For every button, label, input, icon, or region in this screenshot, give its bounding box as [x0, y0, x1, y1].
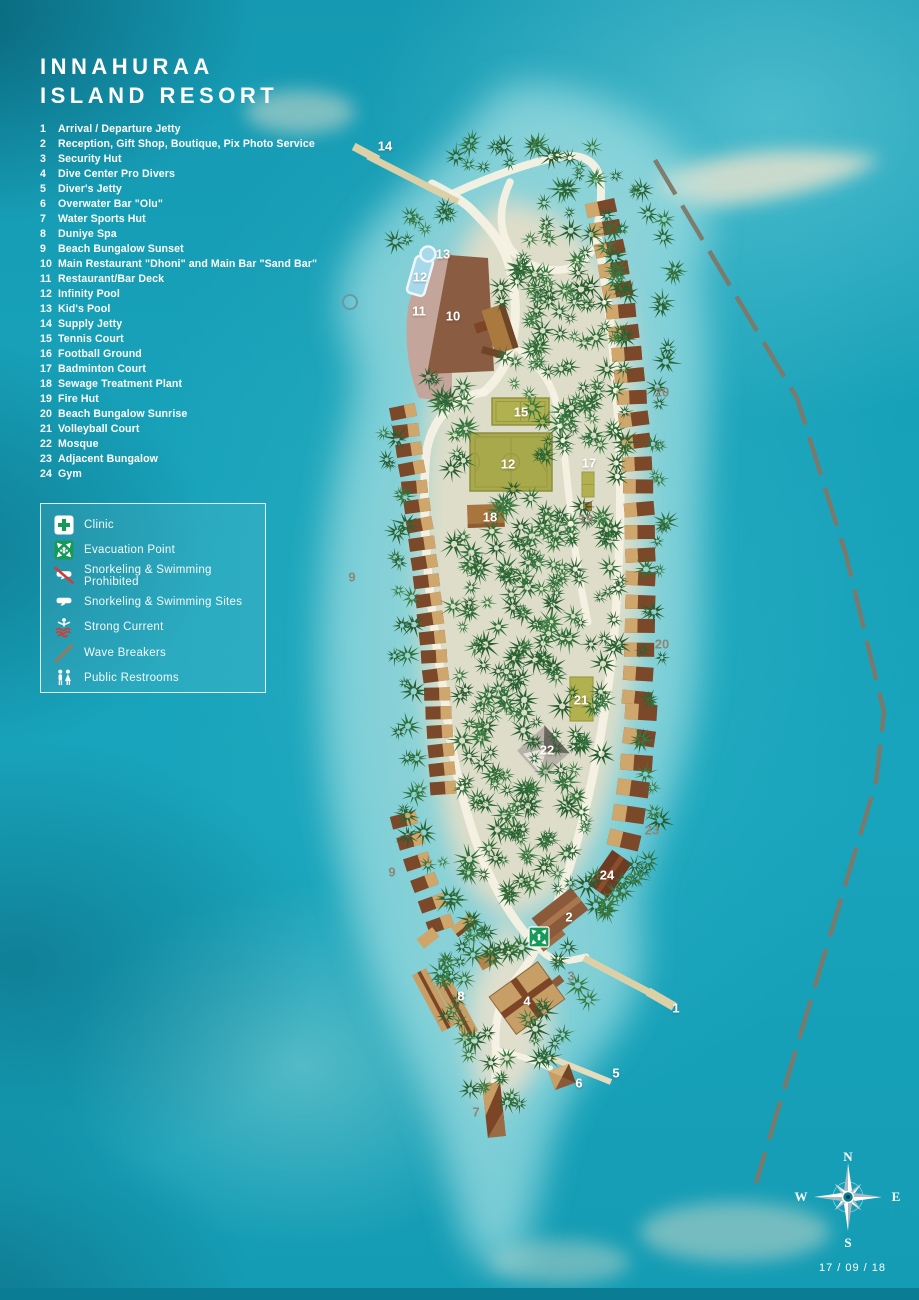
- map-number-label: 18: [483, 510, 497, 525]
- legend-item-label: Kid's Pool: [58, 303, 110, 315]
- strong-current-icon: [53, 616, 75, 638]
- bottom-bar: [0, 1288, 919, 1300]
- evacuation-point-icon: [53, 539, 75, 561]
- legend-item-label: Beach Bungalow Sunset: [58, 243, 184, 255]
- buoy-marker: [343, 295, 357, 309]
- legend-item-label: Supply Jetty: [58, 318, 122, 330]
- legend-item-label: Gym: [58, 468, 82, 480]
- map-number-label: 9: [388, 865, 395, 880]
- map-number-label: 8: [457, 989, 464, 1004]
- map-number-label: 22: [540, 743, 554, 758]
- legend-item-label: Restaurant/Bar Deck: [58, 273, 164, 285]
- map-number-label: 12: [501, 457, 515, 472]
- legend-item-label: Fire Hut: [58, 393, 99, 405]
- legend-item: 8 Duniye Spa: [40, 226, 340, 241]
- symbols-legend-label: Strong Current: [84, 621, 164, 633]
- legend-item: 15 Tennis Court: [40, 331, 340, 346]
- symbols-legend-row: Snorkeling & Swimming Sites: [53, 589, 265, 615]
- symbols-legend-row: Snorkeling & Swimming Prohibited: [53, 563, 265, 589]
- map-number-label: 20: [655, 637, 669, 652]
- legend-item-label: Dive Center Pro Divers: [58, 168, 175, 180]
- symbols-legend-row: Strong Current: [53, 614, 265, 640]
- map-number-label: 23: [645, 823, 659, 838]
- map-number-label: 14: [378, 139, 392, 154]
- legend-item-label: Water Sports Hut: [58, 213, 146, 225]
- map-number-label: 2: [565, 910, 572, 925]
- resort-title-line1: INNAHURAA: [40, 52, 278, 81]
- legend-item-number: 20: [40, 408, 58, 420]
- legend-item: 5 Diver's Jetty: [40, 181, 340, 196]
- sandbank-south: [640, 1202, 830, 1262]
- legend-item-number: 1: [40, 123, 58, 135]
- legend-item-label: Badminton Court: [58, 363, 146, 375]
- symbols-legend-box: Clinic Evacuation Point Snorkeling & Swi…: [40, 503, 266, 693]
- legend-item: 22 Mosque: [40, 436, 340, 451]
- legend-item: 21 Volleyball Court: [40, 421, 340, 436]
- numbered-legend-list: 1 Arrival / Departure Jetty 2 Reception,…: [40, 121, 340, 481]
- legend-item: 17 Badminton Court: [40, 361, 340, 376]
- legend-item-number: 17: [40, 363, 58, 375]
- legend-item-number: 8: [40, 228, 58, 240]
- legend-item: 6 Overwater Bar "Olu": [40, 196, 340, 211]
- legend-item: 18 Sewage Treatment Plant: [40, 376, 340, 391]
- legend-item-number: 10: [40, 258, 58, 270]
- evacuation-point-marker: [529, 927, 549, 947]
- legend-item-number: 24: [40, 468, 58, 480]
- legend-item-number: 14: [40, 318, 58, 330]
- legend-item: 2 Reception, Gift Shop, Boutique, Pix Ph…: [40, 136, 340, 151]
- map-date: 17 / 09 / 18: [819, 1262, 886, 1274]
- legend-item-number: 16: [40, 348, 58, 360]
- symbols-legend-row: Public Restrooms: [53, 666, 265, 692]
- map-number-label: 3: [567, 969, 574, 984]
- resort-title: INNAHURAA ISLAND RESORT: [40, 52, 278, 110]
- kids-pool: [421, 247, 436, 262]
- map-number-label: 5: [612, 1066, 619, 1081]
- symbols-legend-row: Wave Breakers: [53, 640, 265, 666]
- map-number-label: 17: [582, 456, 596, 471]
- legend-item-label: Diver's Jetty: [58, 183, 122, 195]
- legend-item-number: 2: [40, 138, 58, 150]
- legend-item-number: 13: [40, 303, 58, 315]
- legend-item-number: 22: [40, 438, 58, 450]
- legend-item-number: 11: [40, 273, 58, 285]
- legend-item: 10 Main Restaurant "Dhoni" and Main Bar …: [40, 256, 340, 271]
- legend-item: 20 Beach Bungalow Sunrise: [40, 406, 340, 421]
- legend-item-label: Sewage Treatment Plant: [58, 378, 182, 390]
- legend-item-label: Beach Bungalow Sunrise: [58, 408, 187, 420]
- legend-item-label: Tennis Court: [58, 333, 124, 345]
- map-number-label: 12: [413, 270, 427, 285]
- legend-item-number: 23: [40, 453, 58, 465]
- legend-item: 7 Water Sports Hut: [40, 211, 340, 226]
- legend-item-number: 18: [40, 378, 58, 390]
- legend-item-label: Adjacent Bungalow: [58, 453, 158, 465]
- legend-item-label: Reception, Gift Shop, Boutique, Pix Phot…: [58, 138, 315, 150]
- legend-item: 3 Security Hut: [40, 151, 340, 166]
- compass-south-label: S: [844, 1235, 851, 1250]
- resort-title-line2: ISLAND RESORT: [40, 81, 278, 110]
- legend-item-number: 7: [40, 213, 58, 225]
- legend-item-number: 12: [40, 288, 58, 300]
- legend-item-label: Duniye Spa: [58, 228, 117, 240]
- map-number-label: 20: [655, 385, 669, 400]
- compass-west-label: W: [795, 1189, 808, 1204]
- map-number-label: 24: [600, 868, 614, 883]
- legend-item-label: Security Hut: [58, 153, 122, 165]
- map-number-label: 6: [575, 1076, 582, 1091]
- symbols-legend-row: Clinic: [53, 512, 265, 538]
- legend-item-label: Arrival / Departure Jetty: [58, 123, 181, 135]
- legend-item-number: 21: [40, 423, 58, 435]
- compass-east-label: E: [892, 1189, 901, 1204]
- snorkeling-sites-icon: [53, 591, 75, 613]
- badminton-court: [582, 472, 594, 497]
- legend-item: 13 Kid's Pool: [40, 301, 340, 316]
- symbols-legend-label: Evacuation Point: [84, 544, 175, 556]
- clinic-icon: [53, 514, 75, 536]
- map-number-label: 9: [348, 570, 355, 585]
- legend-item-label: Overwater Bar "Olu": [58, 198, 163, 210]
- legend-item-label: Infinity Pool: [58, 288, 120, 300]
- legend-item: 11 Restaurant/Bar Deck: [40, 271, 340, 286]
- legend-item-number: 3: [40, 153, 58, 165]
- resort-map-poster: N S W E INNAHURAA ISLAND RESORT 1 Arriva…: [0, 0, 919, 1300]
- map-number-label: 19: [579, 512, 593, 527]
- map-number-label: 1: [672, 1001, 679, 1016]
- legend-item: 9 Beach Bungalow Sunset: [40, 241, 340, 256]
- legend-item-number: 15: [40, 333, 58, 345]
- legend-item-number: 4: [40, 168, 58, 180]
- symbols-legend-label: Clinic: [84, 519, 114, 531]
- legend-item: 12 Infinity Pool: [40, 286, 340, 301]
- symbols-legend-label: Snorkeling & Swimming Sites: [84, 596, 242, 608]
- wave-breakers-icon: [53, 642, 75, 664]
- map-number-label: 11: [412, 304, 426, 319]
- legend-item-number: 5: [40, 183, 58, 195]
- snorkeling-prohibited-icon: [53, 565, 75, 587]
- compass-north-label: N: [843, 1149, 853, 1164]
- legend-item-number: 6: [40, 198, 58, 210]
- legend-item-number: 19: [40, 393, 58, 405]
- public-restrooms-icon: [53, 667, 75, 689]
- legend-item: 14 Supply Jetty: [40, 316, 340, 331]
- legend-item: 16 Football Ground: [40, 346, 340, 361]
- map-number-label: 10: [446, 309, 460, 324]
- symbols-legend-label: Wave Breakers: [84, 647, 166, 659]
- map-number-label: 15: [514, 405, 528, 420]
- legend-item-number: 9: [40, 243, 58, 255]
- legend-item-label: Mosque: [58, 438, 99, 450]
- symbols-legend-label: Public Restrooms: [84, 672, 179, 684]
- legend-item: 24 Gym: [40, 466, 340, 481]
- legend-item-label: Main Restaurant "Dhoni" and Main Bar "Sa…: [58, 258, 317, 270]
- legend-item-label: Football Ground: [58, 348, 142, 360]
- legend-item: 19 Fire Hut: [40, 391, 340, 406]
- legend-item: 4 Dive Center Pro Divers: [40, 166, 340, 181]
- map-number-label: 21: [574, 693, 588, 708]
- legend-item-label: Volleyball Court: [58, 423, 139, 435]
- map-number-label: 7: [472, 1105, 479, 1120]
- map-number-label: 13: [436, 247, 450, 262]
- map-number-label: 4: [523, 994, 530, 1009]
- legend-item: 23 Adjacent Bungalow: [40, 451, 340, 466]
- legend-item: 1 Arrival / Departure Jetty: [40, 121, 340, 136]
- symbols-legend-row: Evacuation Point: [53, 538, 265, 564]
- symbols-legend-label: Snorkeling & Swimming Prohibited: [84, 564, 265, 588]
